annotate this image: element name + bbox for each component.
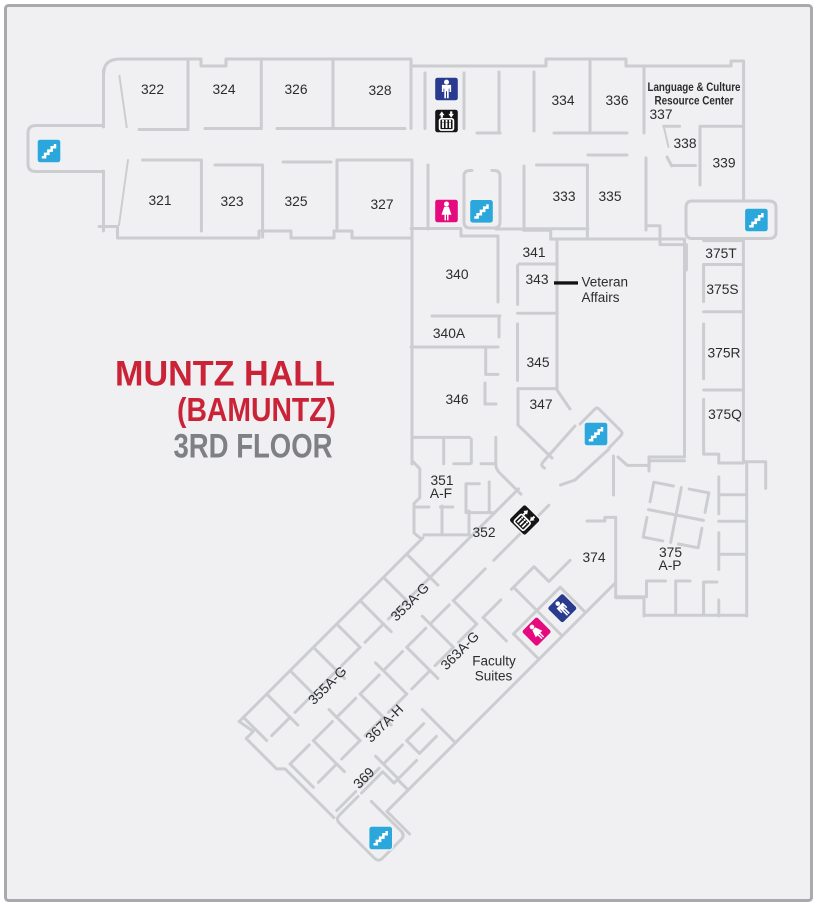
svg-text:324: 324 bbox=[212, 82, 235, 97]
svg-text:352: 352 bbox=[472, 525, 495, 540]
svg-text:341: 341 bbox=[522, 245, 545, 260]
svg-text:322: 322 bbox=[141, 82, 164, 97]
svg-text:334: 334 bbox=[551, 93, 574, 108]
svg-text:336: 336 bbox=[605, 93, 628, 108]
svg-text:333: 333 bbox=[552, 189, 575, 204]
svg-text:339: 339 bbox=[712, 156, 735, 171]
svg-text:325: 325 bbox=[284, 194, 307, 209]
svg-text:375T: 375T bbox=[705, 246, 737, 261]
svg-text:A-P: A-P bbox=[659, 558, 682, 573]
svg-text:343: 343 bbox=[525, 272, 548, 287]
svg-text:Affairs: Affairs bbox=[582, 290, 620, 305]
svg-text:MUNTZ HALL: MUNTZ HALL bbox=[115, 354, 335, 394]
svg-text:335: 335 bbox=[598, 189, 621, 204]
svg-text:338: 338 bbox=[673, 136, 696, 151]
svg-text:Veteran: Veteran bbox=[582, 274, 629, 289]
svg-text:374: 374 bbox=[582, 550, 605, 565]
svg-text:Faculty: Faculty bbox=[472, 654, 516, 669]
svg-text:327: 327 bbox=[370, 197, 393, 212]
svg-text:328: 328 bbox=[368, 83, 391, 98]
svg-text:321: 321 bbox=[148, 193, 171, 208]
svg-text:(BAMUNTZ): (BAMUNTZ) bbox=[177, 391, 336, 428]
svg-text:375Q: 375Q bbox=[708, 407, 742, 422]
svg-text:345: 345 bbox=[526, 355, 549, 370]
svg-text:A-F: A-F bbox=[430, 486, 452, 501]
svg-text:340: 340 bbox=[445, 267, 468, 282]
svg-text:Suites: Suites bbox=[475, 669, 513, 684]
svg-text:Language & Culture: Language & Culture bbox=[648, 82, 741, 94]
svg-text:375S: 375S bbox=[706, 282, 738, 297]
svg-text:326: 326 bbox=[284, 82, 307, 97]
svg-text:323: 323 bbox=[220, 194, 243, 209]
svg-text:337: 337 bbox=[649, 107, 672, 122]
svg-text:Resource Center: Resource Center bbox=[655, 96, 734, 108]
svg-text:346: 346 bbox=[445, 392, 468, 407]
svg-text:375R: 375R bbox=[708, 346, 741, 361]
svg-text:340A: 340A bbox=[433, 326, 466, 341]
svg-text:347: 347 bbox=[529, 397, 552, 412]
svg-text:3RD FLOOR: 3RD FLOOR bbox=[174, 428, 333, 466]
